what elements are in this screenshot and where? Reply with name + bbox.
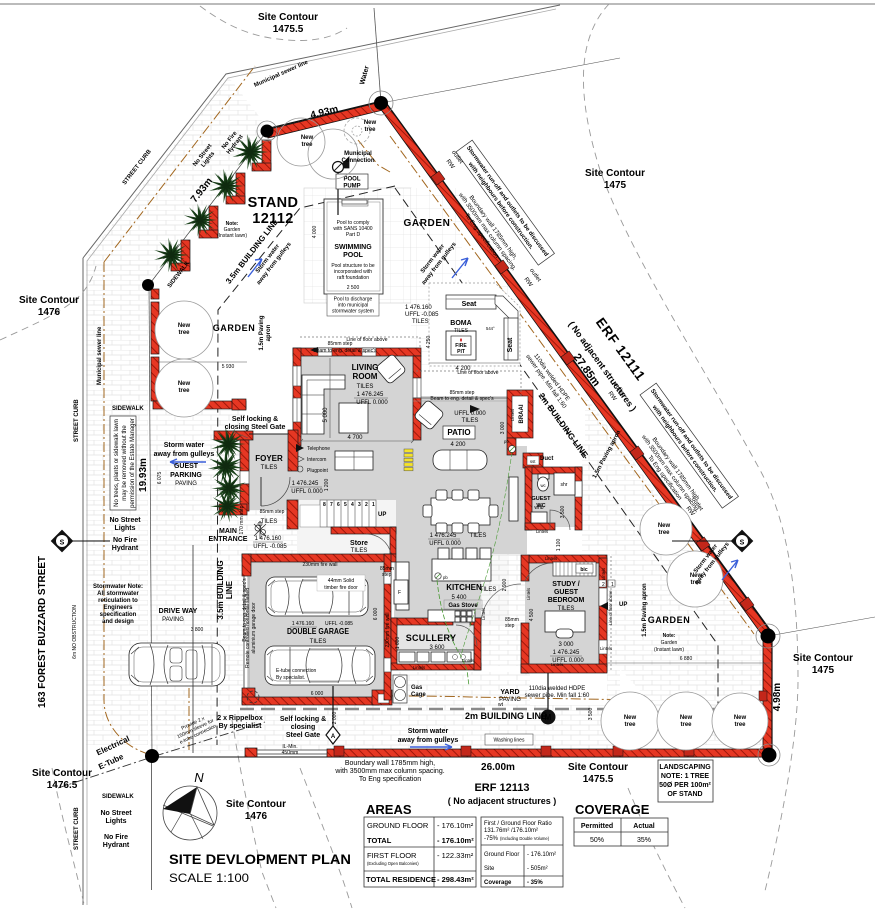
svg-text:TILES: TILES	[454, 328, 469, 334]
svg-text:PAVING: PAVING	[162, 617, 184, 623]
svg-text:Municipal: Municipal	[344, 151, 372, 157]
svg-text:163 FOREST BUZZARD STREET: 163 FOREST BUZZARD STREET	[37, 556, 48, 708]
svg-text:Engineers: Engineers	[103, 605, 133, 611]
svg-text:44mm Solid: 44mm Solid	[328, 578, 355, 584]
svg-text:GUEST: GUEST	[174, 463, 199, 470]
svg-text:tree: tree	[301, 142, 313, 148]
svg-text:raft foundation: raft foundation	[337, 275, 369, 281]
svg-text:POOL: POOL	[343, 177, 360, 183]
svg-text:1 476.245: 1 476.245	[357, 392, 384, 398]
svg-text:By specialist: By specialist	[219, 723, 262, 730]
svg-text:may be removed without the: may be removed without the	[122, 425, 128, 501]
svg-text:3 000: 3 000	[558, 642, 574, 648]
svg-text:KITCHEN: KITCHEN	[446, 583, 482, 592]
svg-text:OF STAND: OF STAND	[667, 791, 702, 798]
svg-text:GUEST: GUEST	[532, 496, 552, 502]
svg-text:TILES: TILES	[470, 533, 487, 539]
svg-text:26.00m: 26.00m	[481, 762, 515, 773]
svg-text:Storm water: Storm water	[408, 728, 449, 735]
svg-text:Permitted: Permitted	[581, 823, 613, 830]
svg-text:New: New	[178, 323, 191, 329]
svg-text:TILES: TILES	[412, 319, 429, 325]
svg-text:Seat: Seat	[462, 301, 477, 308]
svg-text:sst: sst	[530, 459, 536, 464]
svg-text:YARD: YARD	[500, 689, 519, 696]
svg-text:WC: WC	[536, 503, 545, 509]
svg-text:COVERAGE: COVERAGE	[575, 802, 650, 817]
svg-text:UFFL 0.000: UFFL 0.000	[291, 489, 323, 495]
svg-text:Steel Gate: Steel Gate	[286, 732, 320, 739]
svg-text:pb: pb	[443, 575, 448, 580]
svg-text:1: 1	[372, 502, 375, 508]
svg-text:PATIO: PATIO	[447, 428, 470, 437]
svg-text:No Street: No Street	[109, 517, 141, 524]
svg-text:New: New	[680, 715, 693, 721]
svg-text:Site Contour: Site Contour	[19, 295, 79, 306]
svg-text:6 880: 6 880	[680, 656, 693, 662]
svg-text:UFFL -0.085: UFFL -0.085	[405, 312, 439, 318]
svg-text:1475: 1475	[812, 665, 835, 676]
svg-text:Lights: Lights	[106, 818, 127, 825]
svg-text:1476: 1476	[38, 307, 61, 318]
svg-text:away from gulleys: away from gulleys	[154, 451, 215, 458]
svg-text:timber fire door: timber fire door	[324, 585, 358, 591]
svg-text:GARDEN: GARDEN	[213, 323, 256, 333]
svg-text:3 000: 3 000	[500, 422, 506, 435]
svg-text:2 000: 2 000	[332, 712, 338, 725]
svg-text:New: New	[734, 715, 747, 721]
svg-text:Seat: Seat	[507, 337, 514, 352]
svg-text:Connection: Connection	[342, 158, 375, 164]
svg-text:-75%: -75%	[484, 836, 499, 842]
svg-text:TILES: TILES	[558, 606, 575, 612]
svg-text:tree: tree	[658, 530, 670, 536]
svg-text:step: step	[382, 572, 392, 578]
svg-text:6: 6	[337, 502, 340, 508]
svg-text:tree: tree	[364, 127, 376, 133]
svg-text:GARDEN: GARDEN	[648, 615, 691, 625]
svg-text:BEDROOM: BEDROOM	[548, 597, 585, 604]
svg-text:35%: 35%	[637, 837, 651, 844]
svg-text:STAND: STAND	[248, 195, 299, 211]
svg-text:Beam to eng. detail & spec's: Beam to eng. detail & spec's	[313, 348, 377, 354]
svg-text:2 900: 2 900	[502, 579, 508, 592]
svg-text:ENTRANCE: ENTRANCE	[209, 536, 248, 543]
svg-text:apron: apron	[266, 324, 272, 341]
svg-text:PUMP: PUMP	[343, 184, 360, 190]
svg-text:TILES: TILES	[357, 384, 374, 390]
svg-text:Telephone: Telephone	[307, 446, 330, 452]
svg-text:UFFL 0.000: UFFL 0.000	[552, 658, 584, 664]
svg-text:PIT: PIT	[457, 349, 465, 355]
svg-text:110dia welded HDPE: 110dia welded HDPE	[529, 686, 586, 692]
svg-text:PARKING: PARKING	[170, 472, 202, 479]
svg-text:1 476.245: 1 476.245	[430, 533, 457, 539]
svg-text:SCALE 1:100: SCALE 1:100	[169, 873, 249, 885]
svg-text:tree: tree	[690, 580, 702, 586]
svg-text:Site Contour: Site Contour	[258, 12, 318, 23]
svg-text:2: 2	[365, 502, 368, 508]
svg-text:F: F	[398, 590, 401, 596]
svg-text:Duct: Duct	[540, 456, 553, 462]
svg-text:stormwater system: stormwater system	[332, 309, 374, 315]
svg-text:wt: wt	[498, 702, 504, 708]
svg-text:TILES: TILES	[310, 639, 327, 645]
svg-text:Lights: Lights	[115, 525, 136, 532]
svg-text:First / Ground Floor Ratio: First / Ground Floor Ratio	[484, 821, 552, 827]
svg-text:3 500: 3 500	[560, 506, 566, 519]
svg-text:Actual: Actual	[633, 823, 654, 830]
svg-text:Lintels: Lintels	[545, 556, 557, 561]
svg-text:5 000: 5 000	[323, 407, 329, 423]
svg-text:1 200: 1 200	[324, 479, 330, 492]
svg-text:Site Contour: Site Contour	[32, 768, 92, 779]
svg-text:85mm step: 85mm step	[328, 341, 353, 347]
svg-text:Gas Stove: Gas Stove	[448, 603, 478, 609]
svg-text:tree: tree	[734, 722, 746, 728]
svg-text:230mm fire wall: 230mm fire wall	[302, 562, 337, 568]
svg-text:Site Contour: Site Contour	[226, 799, 286, 810]
svg-text:POOL: POOL	[343, 252, 364, 259]
svg-text:1.5m Paving apron: 1.5m Paving apron	[642, 583, 648, 637]
svg-text:No Fire: No Fire	[113, 537, 137, 544]
svg-text:Lintels: Lintels	[526, 588, 531, 600]
svg-text:- 176.10m²: - 176.10m²	[527, 852, 556, 858]
svg-text:450mm: 450mm	[282, 750, 299, 756]
svg-text:1 476.245: 1 476.245	[553, 650, 580, 656]
svg-text:170 mm step: 170 mm step	[239, 505, 245, 534]
svg-text:No trees, plants or sidewalk l: No trees, plants or sidewalk lawn	[114, 419, 120, 507]
svg-text:Lintels: Lintels	[413, 665, 425, 670]
svg-text:TILES: TILES	[351, 548, 368, 554]
svg-text:E-tube connection: E-tube connection	[276, 668, 317, 674]
svg-text:aluminium garage door: aluminium garage door	[251, 602, 257, 653]
svg-text:5: 5	[344, 502, 347, 508]
svg-text:Line of floor above: Line of floor above	[346, 337, 387, 343]
svg-text:- 35%: - 35%	[527, 880, 543, 886]
svg-text:SITE DEVLOPMENT PLAN: SITE DEVLOPMENT PLAN	[169, 852, 351, 867]
svg-text:131.76m² /176.10m²: 131.76m² /176.10m²	[484, 828, 538, 834]
svg-text:Plugpoint: Plugpoint	[307, 468, 328, 474]
svg-text:FIRST FLOOR: FIRST FLOOR	[367, 851, 417, 860]
svg-text:TOTAL: TOTAL	[367, 836, 392, 845]
svg-text:6 075: 6 075	[157, 472, 163, 485]
svg-text:STUDY /: STUDY /	[552, 581, 580, 588]
svg-text:UP: UP	[378, 512, 386, 518]
svg-text:shr: shr	[561, 482, 568, 488]
svg-text:STREET CURB: STREET CURB	[74, 399, 80, 442]
svg-text:UFFL 0.000: UFFL 0.000	[356, 400, 388, 406]
svg-text:All stormwater: All stormwater	[97, 591, 139, 597]
svg-text:TILES: TILES	[261, 519, 278, 525]
svg-text:(Including Double Volume): (Including Double Volume)	[500, 836, 550, 841]
svg-text:SIDEWALK: SIDEWALK	[112, 406, 144, 412]
svg-text:Cage: Cage	[411, 692, 426, 698]
svg-text:1476: 1476	[245, 811, 268, 822]
svg-text:New: New	[364, 120, 377, 126]
svg-text:Store: Store	[350, 540, 368, 547]
svg-text:tree: tree	[624, 722, 636, 728]
svg-text:2: 2	[602, 582, 605, 588]
svg-text:SIDEWALK: SIDEWALK	[102, 794, 134, 800]
svg-text:Hydrant: Hydrant	[103, 842, 130, 849]
svg-text:STREET CURB: STREET CURB	[74, 807, 80, 850]
svg-text:reticulation to: reticulation to	[98, 598, 138, 604]
svg-text:SWIMMING: SWIMMING	[334, 244, 372, 251]
svg-text:1 476.245: 1 476.245	[292, 481, 319, 487]
svg-text:S: S	[740, 540, 745, 547]
svg-text:1 100: 1 100	[556, 539, 562, 552]
svg-text:S: S	[60, 540, 65, 547]
svg-text:4 000: 4 000	[312, 226, 318, 239]
svg-text:NOTE: 1 TREE: NOTE: 1 TREE	[661, 773, 710, 780]
svg-text:PAVING: PAVING	[175, 481, 197, 487]
svg-text:Lintels: Lintels	[462, 658, 474, 663]
svg-text:TILES: TILES	[462, 418, 479, 424]
svg-text:Washing lines: Washing lines	[494, 738, 525, 744]
svg-text:Lintels: Lintels	[510, 409, 515, 421]
svg-text:DRIVE WAY: DRIVE WAY	[159, 608, 198, 615]
svg-text:Gas: Gas	[411, 685, 423, 691]
svg-text:GROUND FLOOR: GROUND FLOOR	[367, 821, 429, 830]
svg-text:closing: closing	[291, 724, 316, 731]
svg-text:544°: 544°	[486, 326, 495, 331]
svg-text:closing Steel Gate: closing Steel Gate	[225, 424, 286, 431]
svg-text:tree: tree	[680, 722, 692, 728]
svg-text:Beam to eng. detail & spec's: Beam to eng. detail & spec's	[430, 396, 494, 402]
svg-text:Beam to eng. detail & spec's: Beam to eng. detail & spec's	[242, 578, 248, 642]
svg-text:Hydrant: Hydrant	[112, 545, 139, 552]
svg-text:4 200: 4 200	[450, 442, 466, 448]
svg-text:tree: tree	[178, 330, 190, 336]
svg-text:3 600: 3 600	[429, 645, 445, 651]
svg-text:Site Contour: Site Contour	[585, 168, 645, 179]
svg-text:3: 3	[358, 502, 361, 508]
svg-text:New: New	[658, 523, 671, 529]
svg-text:DOUBLE GARAGE: DOUBLE GARAGE	[287, 627, 350, 636]
svg-text:7: 7	[330, 502, 333, 508]
svg-text:permission of the Estate Manag: permission of the Estate Manager	[130, 418, 136, 508]
svg-text:Intercom: Intercom	[307, 457, 326, 463]
svg-text:( No adjacent structures ): ( No adjacent structures )	[448, 796, 557, 806]
svg-text:New: New	[178, 381, 191, 387]
svg-text:and design: and design	[102, 619, 134, 625]
svg-text:Ground Floor: Ground Floor	[484, 852, 519, 858]
svg-text:TILES: TILES	[480, 587, 497, 593]
svg-text:4: 4	[351, 502, 354, 508]
svg-text:No Street: No Street	[100, 810, 132, 817]
svg-text:6 000: 6 000	[373, 608, 379, 621]
svg-text:GUEST: GUEST	[554, 589, 579, 596]
svg-text:4 250: 4 250	[426, 336, 432, 349]
svg-text:85mm step: 85mm step	[260, 509, 285, 515]
svg-text:4 500: 4 500	[529, 609, 535, 622]
svg-text:Site Contour: Site Contour	[568, 762, 628, 773]
svg-text:1 476.160: 1 476.160	[405, 305, 432, 311]
svg-text:Storm water: Storm water	[164, 442, 205, 449]
svg-text:UP: UP	[619, 602, 627, 608]
svg-text:2 x Rippelbox: 2 x Rippelbox	[217, 715, 263, 722]
svg-text:New: New	[301, 135, 314, 141]
svg-text:(Instant lawn): (Instant lawn)	[217, 233, 247, 239]
svg-text:4 200: 4 200	[455, 366, 471, 372]
svg-text:A: A	[331, 734, 336, 740]
svg-text:BOMA: BOMA	[450, 320, 471, 327]
svg-text:Municipal sewer line: Municipal sewer line	[97, 326, 103, 385]
svg-text:SCULLERY: SCULLERY	[406, 633, 457, 643]
svg-text:1476.5: 1476.5	[47, 780, 78, 791]
svg-text:- 176.10m²: - 176.10m²	[437, 821, 474, 830]
svg-text:50Ø PER 100m²: 50Ø PER 100m²	[659, 782, 711, 789]
svg-text:Coverage: Coverage	[484, 880, 512, 886]
svg-text:Part D: Part D	[346, 232, 361, 238]
svg-text:wc: wc	[540, 483, 545, 488]
svg-text:8: 8	[323, 502, 326, 508]
svg-text:To Eng specification: To Eng specification	[359, 776, 421, 783]
svg-text:- 505m²: - 505m²	[527, 866, 548, 872]
svg-text:pb: pb	[504, 439, 509, 444]
svg-text:LANDSCAPING: LANDSCAPING	[659, 764, 711, 771]
svg-text:tree: tree	[178, 388, 190, 394]
svg-text:Self locking &: Self locking &	[232, 416, 278, 423]
svg-text:Boundary wall 1785mm high,: Boundary wall 1785mm high,	[345, 760, 435, 767]
svg-text:No Fire: No Fire	[104, 834, 128, 841]
svg-text:19.93m: 19.93m	[138, 458, 149, 492]
svg-text:ERF 12113: ERF 12113	[474, 782, 529, 794]
svg-text:- 122.33m²: - 122.33m²	[437, 851, 474, 860]
svg-text:- 176.10m²: - 176.10m²	[437, 836, 474, 845]
svg-text:sewer pipe. Min fall 1:60: sewer pipe. Min fall 1:60	[525, 693, 590, 699]
svg-text:LIVING: LIVING	[352, 363, 379, 372]
svg-text:MAIN: MAIN	[219, 528, 237, 535]
svg-text:1475: 1475	[604, 180, 627, 191]
svg-text:UFFL -0.085: UFFL -0.085	[253, 544, 287, 550]
svg-text:BRAAI: BRAAI	[519, 404, 525, 423]
svg-text:New: New	[690, 573, 703, 579]
svg-text:Lintels: Lintels	[600, 646, 612, 651]
svg-text:Note:: Note:	[663, 633, 676, 639]
svg-text:AREAS: AREAS	[366, 802, 412, 817]
svg-text:Lintels: Lintels	[481, 608, 486, 620]
svg-text:1475.5: 1475.5	[583, 774, 614, 785]
svg-text:N: N	[194, 770, 204, 785]
svg-text:FOYER: FOYER	[255, 454, 283, 463]
svg-text:6 000: 6 000	[311, 691, 324, 697]
svg-text:2 500: 2 500	[347, 285, 360, 291]
svg-text:(Excluding Open Balconies): (Excluding Open Balconies)	[367, 861, 419, 866]
svg-text:4.98m: 4.98m	[772, 683, 783, 711]
svg-text:bic: bic	[580, 567, 587, 573]
svg-text:away from gulleys: away from gulleys	[398, 737, 459, 744]
svg-text:- 298.43m²: - 298.43m²	[437, 875, 474, 884]
svg-text:Lintels: Lintels	[536, 529, 548, 534]
svg-text:Stormwater Note:: Stormwater Note:	[93, 584, 143, 590]
svg-text:Self locking &: Self locking &	[280, 716, 326, 723]
svg-text:1 600: 1 600	[395, 637, 401, 650]
svg-text:ROOM: ROOM	[353, 372, 378, 381]
svg-text:3 500: 3 500	[588, 708, 594, 721]
svg-text:2m BUILDING LINE: 2m BUILDING LINE	[465, 711, 547, 721]
svg-text:Site Contour: Site Contour	[793, 653, 853, 664]
svg-text:5 930: 5 930	[222, 364, 235, 370]
svg-text:By specialist.: By specialist.	[276, 675, 305, 681]
svg-text:6m NO OBSTRUCTION: 6m NO OBSTRUCTION	[72, 605, 78, 659]
svg-text:(Instant lawn): (Instant lawn)	[654, 647, 684, 653]
svg-text:3.5m BUILDING: 3.5m BUILDING	[216, 560, 225, 619]
svg-text:1: 1	[611, 582, 614, 588]
svg-text:LINE: LINE	[225, 580, 234, 599]
svg-text:1475.5: 1475.5	[273, 24, 304, 35]
svg-text:UFFL 0.000: UFFL 0.000	[429, 541, 461, 547]
svg-text:1 476.160: 1 476.160	[255, 536, 282, 542]
svg-text:with 3500mm max column spacing: with 3500mm max column spacing.	[334, 768, 444, 775]
svg-text:TOTAL RESIDENCE: TOTAL RESIDENCE	[366, 875, 436, 884]
svg-text:Garden: Garden	[661, 640, 678, 646]
svg-text:New: New	[624, 715, 637, 721]
svg-text:4 700: 4 700	[347, 435, 363, 441]
svg-text:step: step	[505, 623, 515, 629]
svg-text:TILES: TILES	[261, 465, 278, 471]
svg-text:Line of floor above: Line of floor above	[608, 590, 613, 625]
svg-text:Lintels: Lintels	[601, 568, 606, 580]
svg-text:GARDEN: GARDEN	[404, 218, 451, 229]
svg-text:specification: specification	[100, 612, 137, 618]
svg-text:1.5m Paving: 1.5m Paving	[259, 315, 265, 350]
svg-text:50%: 50%	[590, 837, 604, 844]
svg-text:230mm fire wall: 230mm fire wall	[385, 612, 391, 647]
svg-text:Site: Site	[484, 866, 495, 872]
